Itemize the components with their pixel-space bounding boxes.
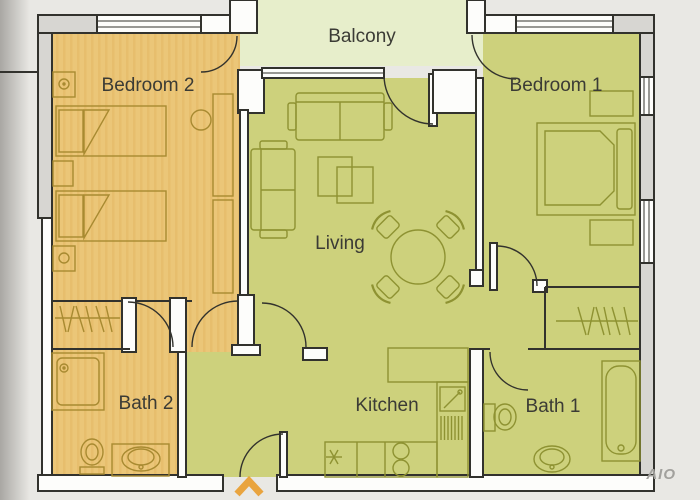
entry-door-leaf — [280, 432, 287, 477]
floor-plan-image: Balcony Bedroom 2 Bedroom 1 Living Kitch… — [0, 0, 700, 500]
bedroom2-window — [97, 15, 201, 33]
hall-post — [470, 270, 483, 286]
right-wall-lower — [640, 263, 654, 475]
living-left-wall — [240, 110, 248, 302]
room-label-balcony: Balcony — [328, 26, 396, 47]
right-wall-upper — [640, 33, 654, 77]
balcony-slider-window — [262, 68, 384, 78]
top-wall-left — [38, 15, 97, 33]
right-window-1 — [640, 77, 654, 115]
page-edge-shadow — [0, 0, 30, 500]
bedroom1-window — [516, 15, 613, 33]
room-label-bedroom2: Bedroom 2 — [102, 75, 195, 96]
room-label-bath2: Bath 2 — [119, 393, 174, 414]
left-wall — [38, 15, 52, 218]
corridor-t-post — [238, 295, 254, 350]
room-label-bath1: Bath 1 — [526, 396, 581, 417]
kitchen-post — [303, 348, 327, 360]
balcony-left-post — [230, 0, 257, 33]
kitchen-bath1-wall — [470, 349, 483, 477]
right-wall-mid — [640, 115, 654, 200]
right-window-2 — [640, 200, 654, 263]
balcony-right-post — [467, 0, 485, 33]
left-wall-lower — [42, 218, 52, 477]
room-label-living: Living — [315, 233, 365, 254]
corridor-post-a — [122, 298, 136, 352]
corridor-t-post-foot — [232, 345, 260, 355]
top-right-corner-wall — [613, 15, 654, 33]
bottom-wall-left — [38, 475, 223, 491]
bath2-right-wall — [178, 352, 186, 477]
living-right-wall — [476, 78, 483, 272]
kitchen-entry-floor — [186, 352, 476, 477]
living-topleft-post — [238, 70, 264, 113]
room-label-kitchen: Kitchen — [355, 395, 418, 416]
living-topright-post — [433, 70, 476, 113]
drainer-icon — [441, 416, 462, 440]
bedroom1-door-leaf — [490, 243, 497, 290]
bedroom1-door-post — [485, 15, 516, 33]
room-label-bedroom1: Bedroom 1 — [510, 75, 603, 96]
floor-plan-svg: Balcony Bedroom 2 Bedroom 1 Living Kitch… — [0, 0, 700, 500]
watermark-logo: AIO — [645, 466, 676, 483]
living-floor — [248, 78, 476, 352]
